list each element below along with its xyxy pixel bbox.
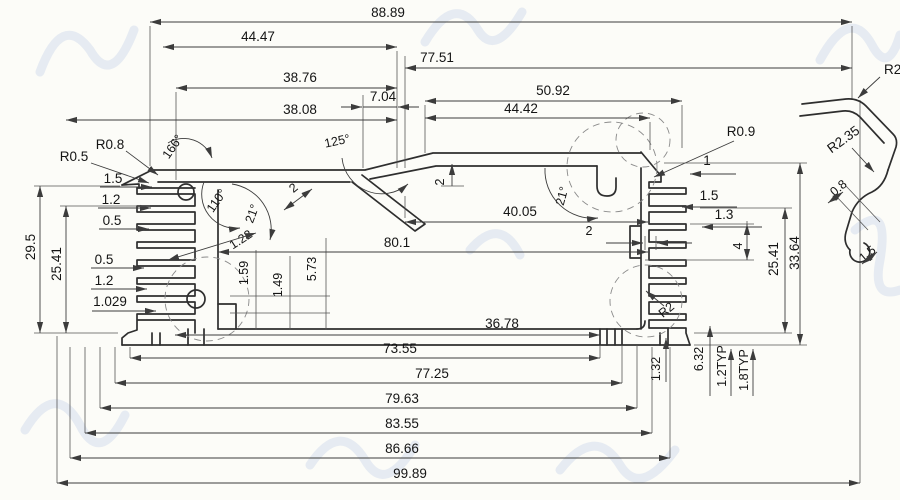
- dim-right-radius-corner: R0.9: [727, 124, 756, 139]
- dim-top-right-lower: 44.42: [504, 101, 538, 116]
- dim-right-hook-width: 1: [703, 153, 711, 168]
- detail-radius: R2.35: [824, 123, 862, 156]
- dim-angle-left-small: 21°: [242, 202, 262, 225]
- dim-left-foot: 1.029: [93, 294, 127, 309]
- dim-width-upper: 40.05: [503, 204, 537, 219]
- dim-right-height-inner: 25.41: [766, 242, 781, 276]
- dimensions-bottom-right: 1.32 6.32 1.2TYP 1.8TYP: [649, 326, 753, 396]
- dim-left-fin-pitch: 1.2: [102, 192, 121, 207]
- dim-bottom-w4: 83.55: [385, 416, 419, 431]
- dim-hook-gap: 2: [586, 224, 593, 238]
- dim-step-b: 1.49: [271, 273, 285, 297]
- dim-left-radius-edge: R0.5: [60, 149, 89, 164]
- dim-right-fin-gap: 1.3: [715, 207, 734, 222]
- dim-left-fin-gap2: 0.5: [95, 252, 114, 267]
- dim-bottom-w1: 73.55: [383, 341, 417, 356]
- dim-step-a: 1.59: [237, 261, 251, 285]
- dim-left-height-inner: 25.41: [49, 247, 64, 281]
- dim-top-left-upper: 44.47: [241, 29, 275, 44]
- dim-top-notch: 7.04: [370, 89, 397, 104]
- detail-circles: [165, 113, 682, 341]
- dim-angle-left-slant: 110°: [204, 186, 230, 214]
- dim-slot-depth: 2: [433, 178, 447, 185]
- dim-top-right-mid: 50.92: [536, 83, 570, 98]
- dim-left-fin-gap: 0.5: [103, 213, 122, 228]
- dimensions-right: R0.9 1 1.5 1.3 4 25.41 33.64 R2: [645, 124, 807, 345]
- dim-baffle-wall: 1.22: [227, 227, 255, 252]
- dim-left-radius-corner: R0.8: [96, 137, 125, 152]
- boss-bottom-left: [187, 290, 205, 308]
- dimensions-bottom: 73.55 77.25 79.63 83.55 86.66 99.89: [57, 100, 860, 483]
- dim-bottom-w5: 86.66: [385, 441, 419, 456]
- dim-width-inner: 80.1: [384, 235, 410, 250]
- dim-br-typ-b: 1.8TYP: [737, 349, 751, 391]
- dimensions-interior: 110° 21° 125° 2 1.22 1.59 1.49 5.73 2 40…: [168, 132, 692, 335]
- dim-bottom-overall: 99.89: [393, 466, 427, 481]
- cad-drawing-page: 88.89 44.47 77.51 38.76 7.04 50.92 38.08…: [0, 0, 900, 500]
- dim-angle-baffle: 125°: [323, 132, 351, 151]
- dim-top-left-mid: 38.76: [283, 70, 317, 85]
- dim-angle-left-corner: 166°: [160, 132, 186, 161]
- dim-br-wall: 1.32: [649, 357, 663, 381]
- dim-bottom-w3: 79.63: [385, 391, 419, 406]
- dimensions-left: R0.8 R0.5 166° 1.5 1.2 0.5 29.5 25.41 0.…: [23, 132, 212, 333]
- dim-width-lower: 36.78: [485, 316, 519, 331]
- dim-left-height-outer: 29.5: [23, 234, 38, 260]
- dim-top-right-upper: 77.51: [420, 50, 454, 65]
- boss-top-left: [178, 184, 194, 200]
- dim-angle-right-corner: 21°: [553, 185, 571, 207]
- dim-top-overall: 88.89: [371, 5, 405, 20]
- dim-step-c: 5.73: [305, 257, 319, 281]
- dim-bottom-w2: 77.25: [415, 366, 449, 381]
- dim-right-fin-tip: 1.5: [700, 188, 719, 203]
- dim-right-height-outer: 33.64: [787, 236, 802, 270]
- dim-right-boss-height: 4: [731, 242, 745, 249]
- dim-top-left-lower: 38.08: [283, 102, 317, 117]
- dim-br-slot: 6.32: [692, 347, 706, 371]
- detail-radius-label: R2: [884, 62, 900, 77]
- cad-drawing-canvas: 88.89 44.47 77.51 38.76 7.04 50.92 38.08…: [0, 0, 900, 500]
- dim-left-fin-pitch2: 1.2: [95, 273, 114, 288]
- dim-left-fin-tip: 1.5: [104, 171, 123, 186]
- dim-br-typ-a: 1.2TYP: [715, 345, 729, 387]
